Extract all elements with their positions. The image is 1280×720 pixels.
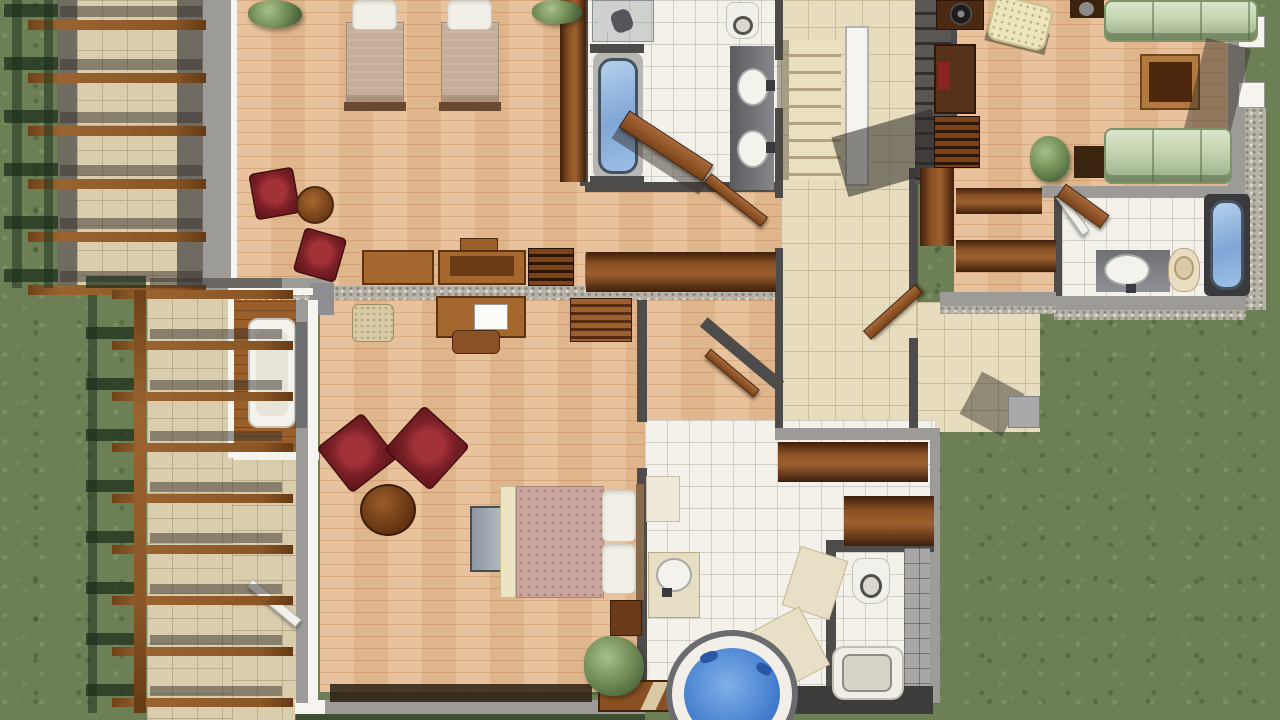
bed3-blanket [516,486,604,598]
entry1-floor [585,192,781,254]
closet-corridor-east [920,168,954,246]
side-table-living-1-top [1079,2,1094,16]
terrace-a-edge-left [57,0,77,293]
wall-south-main [295,700,645,714]
toilet1-bowl [733,16,753,35]
wall-corridor-east-b [909,338,918,430]
nightstand-bedroom2 [610,600,642,636]
wardrobe-bedroom1 [560,0,586,182]
pergola-south-shadow-grass [86,276,146,288]
bed2-blanket [441,22,499,106]
pergola-south-shadow-floor [150,686,282,696]
wall-corridor-west-c [775,248,783,428]
desk-bedroom1-a [362,250,434,285]
bathtub1-ledge-south [590,176,644,185]
pergola-south-shadow-floor [150,380,282,390]
vanity2-tap [1126,284,1136,293]
stone-edge-bathroom2 [1054,310,1246,320]
closet-hallway2-a [956,188,1042,214]
armchair-red-1 [248,166,300,220]
entry-step [1008,396,1040,428]
window-living-2 [1238,82,1265,108]
wall-bathroom2-south [1054,296,1246,310]
toilet2-seat [1174,256,1194,280]
pergola-south-shadow-floor [150,278,282,288]
pergola-north-beam [28,232,206,242]
pergola-south-shadow-floor [150,482,282,492]
pergola-post-shadow [12,0,22,288]
wall-bathroom3-north [775,428,940,440]
bed1-footboard [344,102,406,111]
wall-bedroom2-west-inner [308,300,318,700]
pergola-north-shadow-floor [60,6,202,17]
house-wall-west [203,0,231,293]
vanity1-basin-b [737,130,769,168]
wall-hallway2-south [940,292,1056,306]
bathtub1-ledge-north [590,44,644,53]
pergola-north-shadow-floor [60,112,202,123]
stairs-up [789,40,841,180]
pergola-north-beam [28,20,206,30]
pergola-south-shadow-floor [150,635,282,645]
chair-desk-bedroom2 [452,330,500,354]
bed2-pillow [447,0,492,30]
bed1-pillow [352,0,397,30]
shower-wall-tiles [904,548,930,703]
pergola-south-shadow-floor [150,584,282,594]
floor-plan-scene [0,0,1280,720]
side-table-round-1 [296,186,334,224]
vanity1-basin-a [737,68,769,106]
wall-bedroom2-bath3-a [637,300,647,422]
bathtub3-inner [842,654,892,692]
pergola-north-beam [28,126,206,136]
stairs-up-shadow [777,40,789,180]
grass-shadow-south [295,714,645,720]
pergola-north-shadow-floor [60,165,202,176]
pergola-south-shadow-floor [150,533,282,543]
pouf-bedroom2 [352,304,394,342]
bed2-footboard [439,102,501,111]
vanity2-basin [1104,254,1150,286]
dresser-bedroom2 [570,298,632,342]
closet-bathroom3-east [844,496,934,546]
bed3-pillow-a [602,490,636,542]
cabinet-slatted-1 [528,248,574,286]
pergola-north-shadow-floor [60,218,202,229]
bed3-pillow-b [602,544,636,594]
vanity1-tap-a [766,80,775,91]
bathtub2 [1210,200,1244,290]
terrace-a-floor [77,0,177,293]
closet-entry1 [586,252,776,292]
toilet3-bowl [860,574,882,598]
plant-bedroom2 [584,636,644,696]
bench-bedroom1 [460,238,498,251]
plant-living [1030,136,1070,182]
vanity3-basin [656,558,692,592]
wall-corridor-east-a [909,168,918,290]
closet-hallway2-b [956,240,1056,272]
plant-bathroom1 [532,0,582,24]
terrace-a-edge-right [177,0,203,293]
sofa-north [1104,0,1258,42]
laptop-bedroom2 [474,304,508,330]
desk-bedroom1-inset [450,256,514,276]
pergola-north-beam [28,73,206,83]
vanity3-tap [662,588,672,597]
coffee-table-top [1149,62,1192,102]
plant-bedroom1 [248,0,302,28]
pergola-post-shadow [44,0,53,288]
side-table-living-2 [1074,146,1104,178]
pergola-north-shadow-floor [60,59,202,70]
cabinet-slatted-2 [934,116,980,168]
closet-bathroom3-north [778,442,928,482]
bed3-footboard [500,486,516,598]
bed3-headboard [636,484,644,600]
stone-edge-hallway2 [940,306,1056,314]
bed1-blanket [346,22,404,106]
pergola-ledger-beam [134,290,146,713]
shadow-bedroom2-south [330,684,592,702]
sofa-south [1104,128,1232,184]
pergola-north-beam [28,179,206,189]
side-table-round-2 [360,484,416,536]
pergola-post-shadow [88,295,97,713]
wall-bathroom3-east [930,430,940,703]
outdoor-tub-shadow [295,322,307,428]
pergola-south-shadow-floor [150,329,282,339]
sideboard-red-item [938,62,949,90]
pergola-south-shadow-floor [150,431,282,441]
shelf-bathroom3 [646,476,680,522]
vanity1-tap-b [766,142,775,153]
speaker-living [950,3,972,25]
